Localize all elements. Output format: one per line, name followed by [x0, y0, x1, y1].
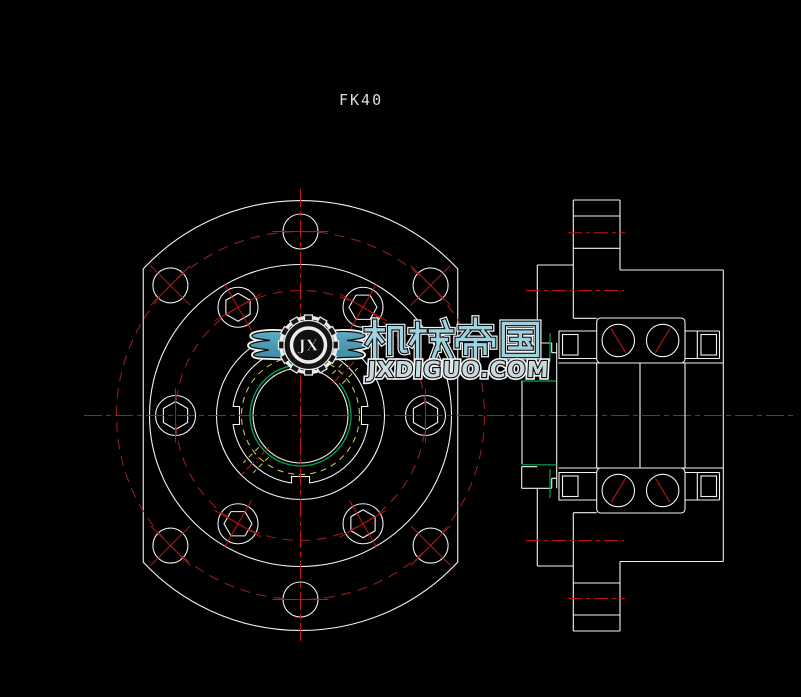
bearing-pair — [597, 318, 685, 513]
bearing-outer-top — [597, 318, 685, 363]
drawing-title: FK40 — [339, 91, 383, 109]
front-view — [84, 189, 797, 641]
watermark: JX JXDIGUO.COM JXDIGUO.COM JXDIGUO.COM — [250, 315, 551, 383]
cad-canvas: 机械帝国 — [0, 0, 801, 697]
bearing-outer-bottom — [597, 468, 685, 513]
watermark-brand-glyphs — [366, 319, 537, 358]
svg-text:JXDIGUO.COM: JXDIGUO.COM — [365, 358, 550, 383]
watermark-monogram: JX — [297, 337, 319, 355]
front-centerlines — [84, 189, 797, 641]
cad-drawing: FK40 — [0, 0, 801, 697]
gear-icon: JX — [279, 315, 339, 375]
watermark-url: JXDIGUO.COM JXDIGUO.COM JXDIGUO.COM — [365, 358, 550, 383]
